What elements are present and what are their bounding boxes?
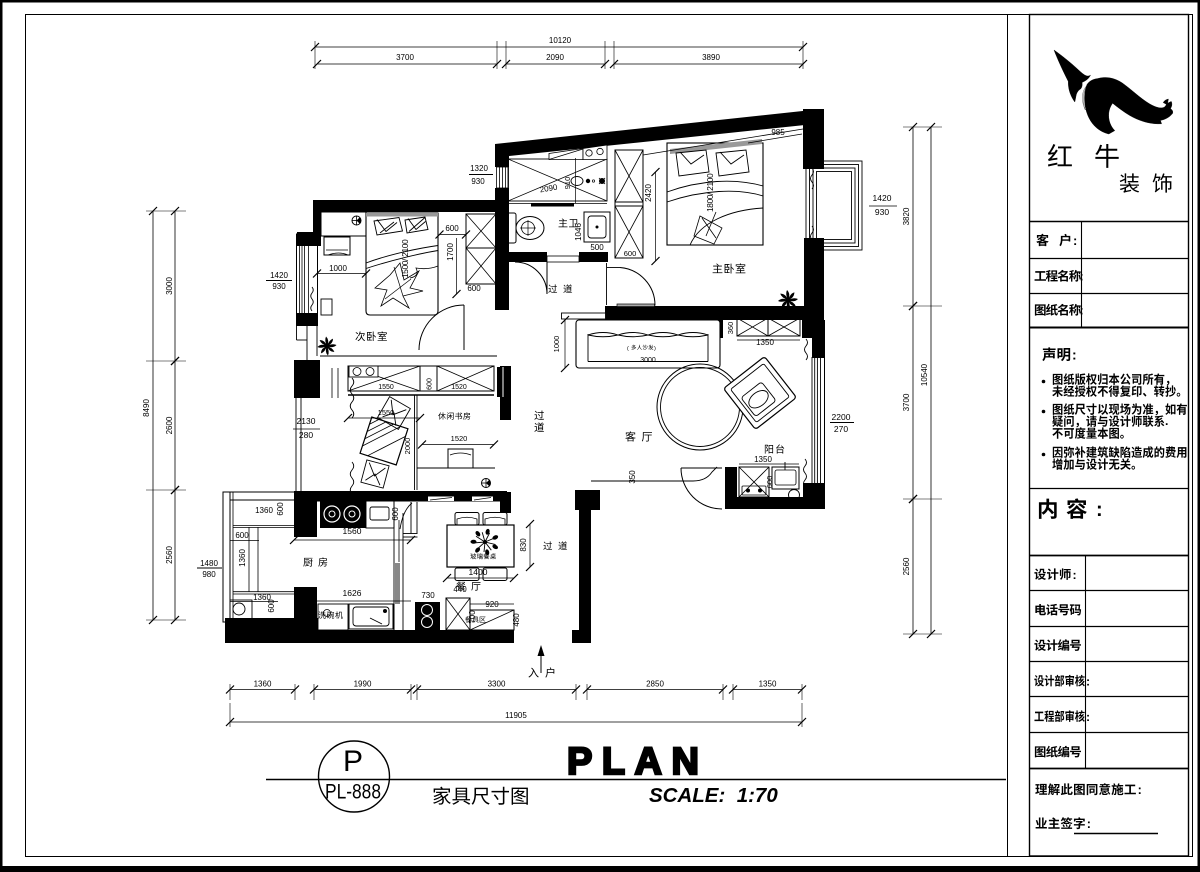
svg-text:0: 0 <box>400 239 410 244</box>
svg-text:930: 930 <box>875 207 889 217</box>
svg-text:1350: 1350 <box>756 338 774 347</box>
svg-text:3700: 3700 <box>902 393 911 411</box>
svg-text:1560: 1560 <box>343 526 362 536</box>
svg-text:1480: 1480 <box>200 559 218 568</box>
svg-text::: : <box>1086 675 1090 689</box>
svg-text:1360: 1360 <box>238 549 247 567</box>
svg-text:600: 600 <box>467 284 481 293</box>
svg-text:1350: 1350 <box>759 680 777 689</box>
svg-text:3000: 3000 <box>640 357 656 364</box>
svg-text:280: 280 <box>299 430 313 440</box>
svg-text:1000: 1000 <box>329 264 347 273</box>
svg-text:2130: 2130 <box>297 416 316 426</box>
svg-text:480: 480 <box>512 613 521 627</box>
svg-text:910: 910 <box>563 177 572 190</box>
svg-text:10120: 10120 <box>549 36 572 45</box>
svg-text:930: 930 <box>471 177 485 186</box>
svg-text:2090: 2090 <box>539 182 559 194</box>
svg-text:600: 600 <box>235 531 249 540</box>
svg-text::: : <box>1096 499 1103 521</box>
svg-text::: : <box>1073 568 1077 582</box>
svg-text:11905: 11905 <box>505 711 527 720</box>
svg-text:600: 600 <box>445 224 459 233</box>
svg-text:1350: 1350 <box>754 455 772 464</box>
svg-text:830: 830 <box>519 538 528 552</box>
svg-text:1320: 1320 <box>470 164 488 173</box>
svg-text::: : <box>1087 817 1091 831</box>
svg-text:1046: 1046 <box>574 223 583 241</box>
svg-text:PL-888: PL-888 <box>325 781 381 804</box>
svg-text:8490: 8490 <box>142 399 151 417</box>
svg-text:980: 980 <box>202 570 216 579</box>
svg-text:2850: 2850 <box>646 680 664 689</box>
svg-text:600: 600 <box>391 507 400 521</box>
svg-text::: : <box>1080 304 1084 318</box>
svg-text:1360: 1360 <box>254 680 272 689</box>
svg-text:1550: 1550 <box>378 384 394 391</box>
svg-text:1420: 1420 <box>873 193 892 203</box>
svg-text::: : <box>1138 783 1142 797</box>
svg-text:350: 350 <box>628 470 637 484</box>
svg-text:1400: 1400 <box>469 567 488 577</box>
svg-text:1520: 1520 <box>451 384 467 391</box>
svg-text:1626: 1626 <box>343 588 362 598</box>
svg-text::: : <box>1086 710 1090 724</box>
svg-text:3890: 3890 <box>702 53 720 62</box>
svg-text::: : <box>1072 347 1077 363</box>
svg-text:1990: 1990 <box>354 680 372 689</box>
svg-text:920: 920 <box>485 600 499 609</box>
svg-text:3700: 3700 <box>396 53 414 62</box>
svg-text:P: P <box>343 745 363 778</box>
svg-text:PLAN: PLAN <box>567 741 708 783</box>
svg-text:600: 600 <box>267 599 276 613</box>
svg-text:3820: 3820 <box>902 207 911 225</box>
svg-text:2600: 2600 <box>165 416 174 434</box>
svg-text:1700: 1700 <box>446 243 455 261</box>
svg-text::: : <box>1073 233 1077 248</box>
svg-text:): ) <box>654 346 656 352</box>
svg-text:1420: 1420 <box>270 271 288 280</box>
svg-text:0: 0 <box>705 173 715 178</box>
svg-text:2560: 2560 <box>165 546 174 564</box>
svg-text:600: 600 <box>624 249 637 258</box>
svg-text:930: 930 <box>272 282 286 291</box>
svg-text:500: 500 <box>590 243 604 252</box>
svg-text:440: 440 <box>453 585 467 594</box>
svg-text:600: 600 <box>765 476 774 489</box>
svg-text:1520: 1520 <box>451 434 468 443</box>
svg-text:270: 270 <box>834 424 848 434</box>
svg-text:3300: 3300 <box>488 680 506 689</box>
svg-text:1000: 1000 <box>552 336 561 353</box>
svg-text:600: 600 <box>276 502 285 516</box>
svg-text:1360: 1360 <box>255 506 273 515</box>
svg-text:360: 360 <box>726 322 735 335</box>
svg-text:730: 730 <box>421 591 435 600</box>
svg-text:2200: 2200 <box>832 412 851 422</box>
svg-text:SCALE: 1:70: SCALE: 1:70 <box>649 784 778 807</box>
svg-text:2560: 2560 <box>902 557 911 575</box>
svg-text::: : <box>1080 270 1084 284</box>
svg-text:10540: 10540 <box>920 363 929 386</box>
svg-text:(: ( <box>627 346 629 352</box>
svg-text:3000: 3000 <box>165 277 174 295</box>
svg-text:2420: 2420 <box>644 184 653 202</box>
svg-text:2090: 2090 <box>546 53 564 62</box>
svg-text:600: 600 <box>427 378 434 390</box>
svg-text:.: . <box>1165 414 1168 428</box>
